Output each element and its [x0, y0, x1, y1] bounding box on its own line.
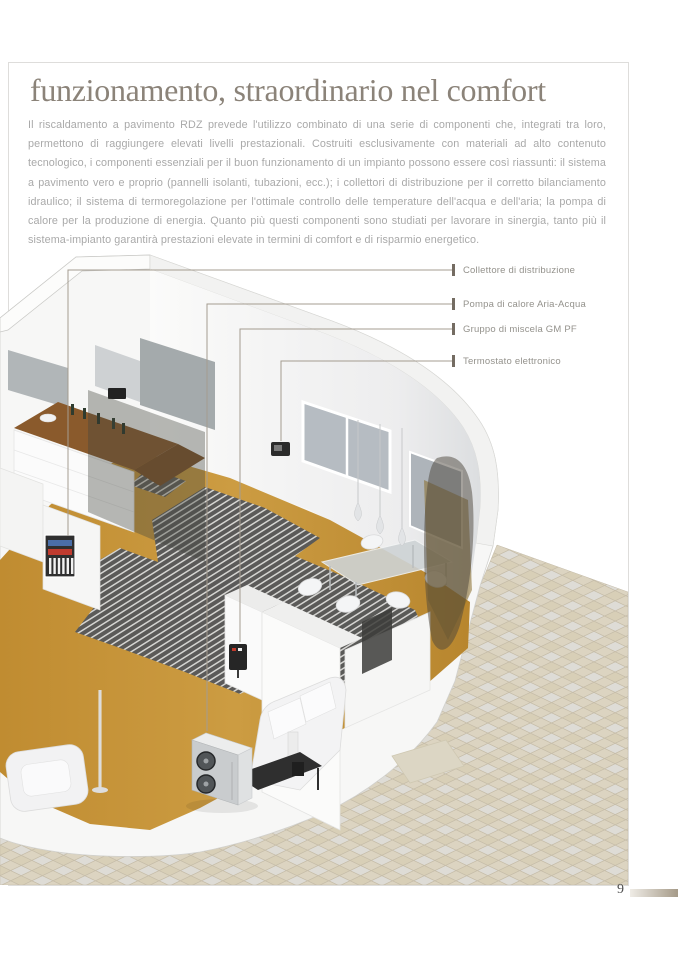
callout-label-termostato: Termostato elettronico — [463, 356, 561, 367]
kitchen-wall-tv — [108, 388, 126, 399]
callout-tick — [452, 355, 455, 367]
callout-gruppo: Gruppo di miscela GM PF — [452, 322, 577, 336]
apartment-cutaway-illustration — [0, 0, 678, 959]
callout-tick — [452, 298, 455, 310]
callout-label-gruppo: Gruppo di miscela GM PF — [463, 324, 577, 335]
thermostat-device — [271, 442, 290, 456]
callout-termostato: Termostato elettronico — [452, 354, 561, 368]
brochure-page: funzionamento, straordinario nel comfort… — [0, 0, 678, 959]
callout-label-pompa: Pompa di calore Aria-Acqua — [463, 299, 586, 310]
callout-collettore: Collettore di distribuzione — [452, 263, 575, 277]
callout-label-collettore: Collettore di distribuzione — [463, 265, 575, 276]
distribution-manifold — [45, 535, 75, 577]
page-number: 9 — [600, 882, 624, 898]
callout-tick — [452, 323, 455, 335]
callout-pompa: Pompa di calore Aria-Acqua — [452, 297, 586, 311]
callout-tick — [452, 264, 455, 276]
armchair — [4, 743, 90, 813]
footer-gradient-bar — [630, 889, 678, 897]
